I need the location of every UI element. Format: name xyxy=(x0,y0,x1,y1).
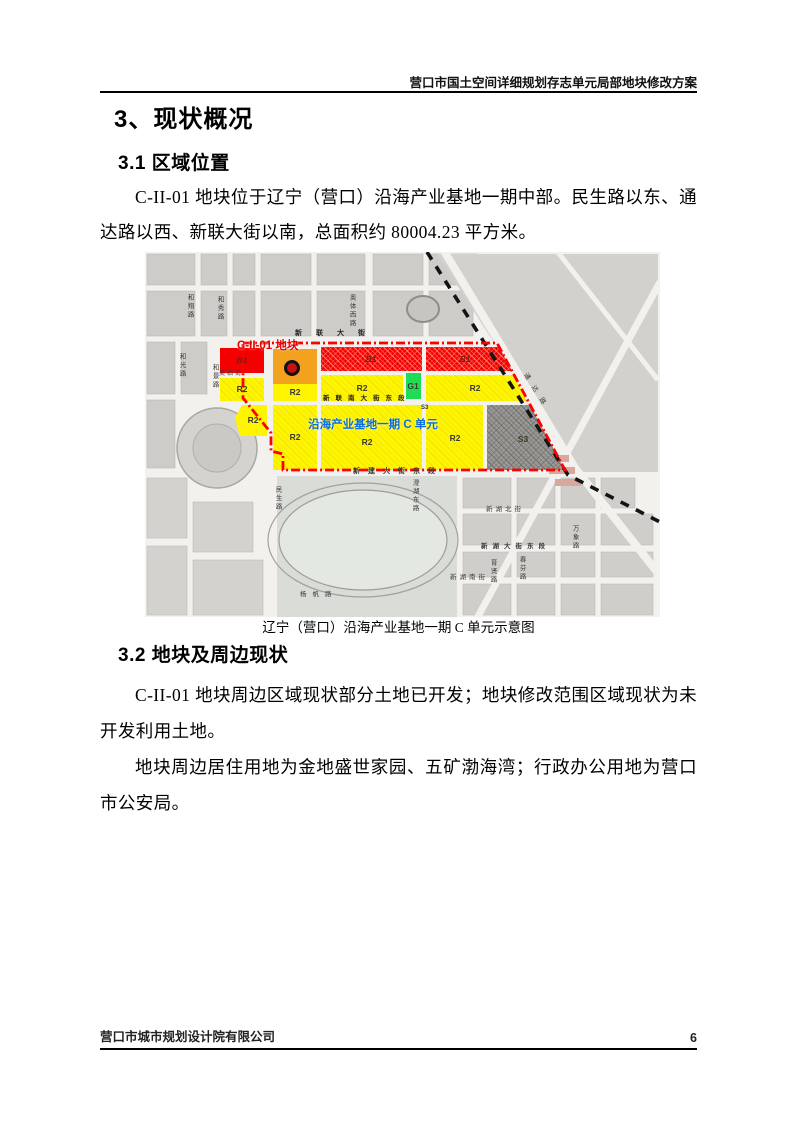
zone-r2-e xyxy=(235,405,267,436)
section-title: 3、现状概况 xyxy=(114,99,253,134)
zone-r2-f-hatch xyxy=(273,405,317,470)
paragraph-3: 地块周边居住用地为金地盛世家园、五矿渤海湾；行政办公用地为营口市公安局。 xyxy=(100,749,697,821)
planning-map: B1 B1 B1 R2 R2 R2 R2 R2 R2 R2 R2 G1 S3 S… xyxy=(145,252,660,617)
zone-b1-mid-hatch xyxy=(321,347,422,371)
lake xyxy=(279,490,447,590)
page-header-text: 营口市国土空间详细规划存志单元局部地块修改方案 xyxy=(100,72,697,91)
map-base xyxy=(145,252,660,617)
page-footer: 营口市城市规划设计院有限公司 6 xyxy=(100,1026,697,1050)
paragraph-2: C-II-01 地块周边区域现状部分土地已开发；地块修改范围区域现状为未开发利用… xyxy=(100,677,697,749)
parcel-label: C-II-01 地块 xyxy=(237,337,298,353)
paragraph-1: C-II-01 地块位于辽宁（营口）沿海产业基地一期中部。民生路以东、通达路以西… xyxy=(100,180,697,250)
figure-caption: 辽宁（营口）沿海产业基地一期 C 单元示意图 xyxy=(100,616,697,636)
roundabout-inner xyxy=(193,424,241,472)
parcel-marker-icon xyxy=(284,360,300,376)
paragraph-block-1: C-II-01 地块位于辽宁（营口）沿海产业基地一期中部。民生路以东、通达路以西… xyxy=(100,180,697,250)
zone-r2-h-hatch xyxy=(426,405,483,470)
zone-r2-b xyxy=(273,384,317,401)
footer-page-number: 6 xyxy=(690,1031,697,1045)
stadium xyxy=(407,296,439,322)
zone-r2-c-hatch xyxy=(321,375,403,401)
subsection-title-3-1: 3.1 区域位置 xyxy=(118,148,230,175)
zone-g1 xyxy=(406,373,421,399)
zone-r2-g-hatch xyxy=(321,405,422,470)
unit-name-label: 沿海产业基地一期 C 单元 xyxy=(308,416,438,432)
subsection-title-3-2: 3.2 地块及周边现状 xyxy=(118,640,288,667)
footer-company: 营口市城市规划设计院有限公司 xyxy=(100,1026,275,1045)
paragraph-block-2: C-II-01 地块周边区域现状部分土地已开发；地块修改范围区域现状为未开发利用… xyxy=(100,677,697,821)
header-rule xyxy=(100,91,697,93)
document-page: 营口市国土空间详细规划存志单元局部地块修改方案 3、现状概况 3.1 区域位置 … xyxy=(0,0,793,1122)
